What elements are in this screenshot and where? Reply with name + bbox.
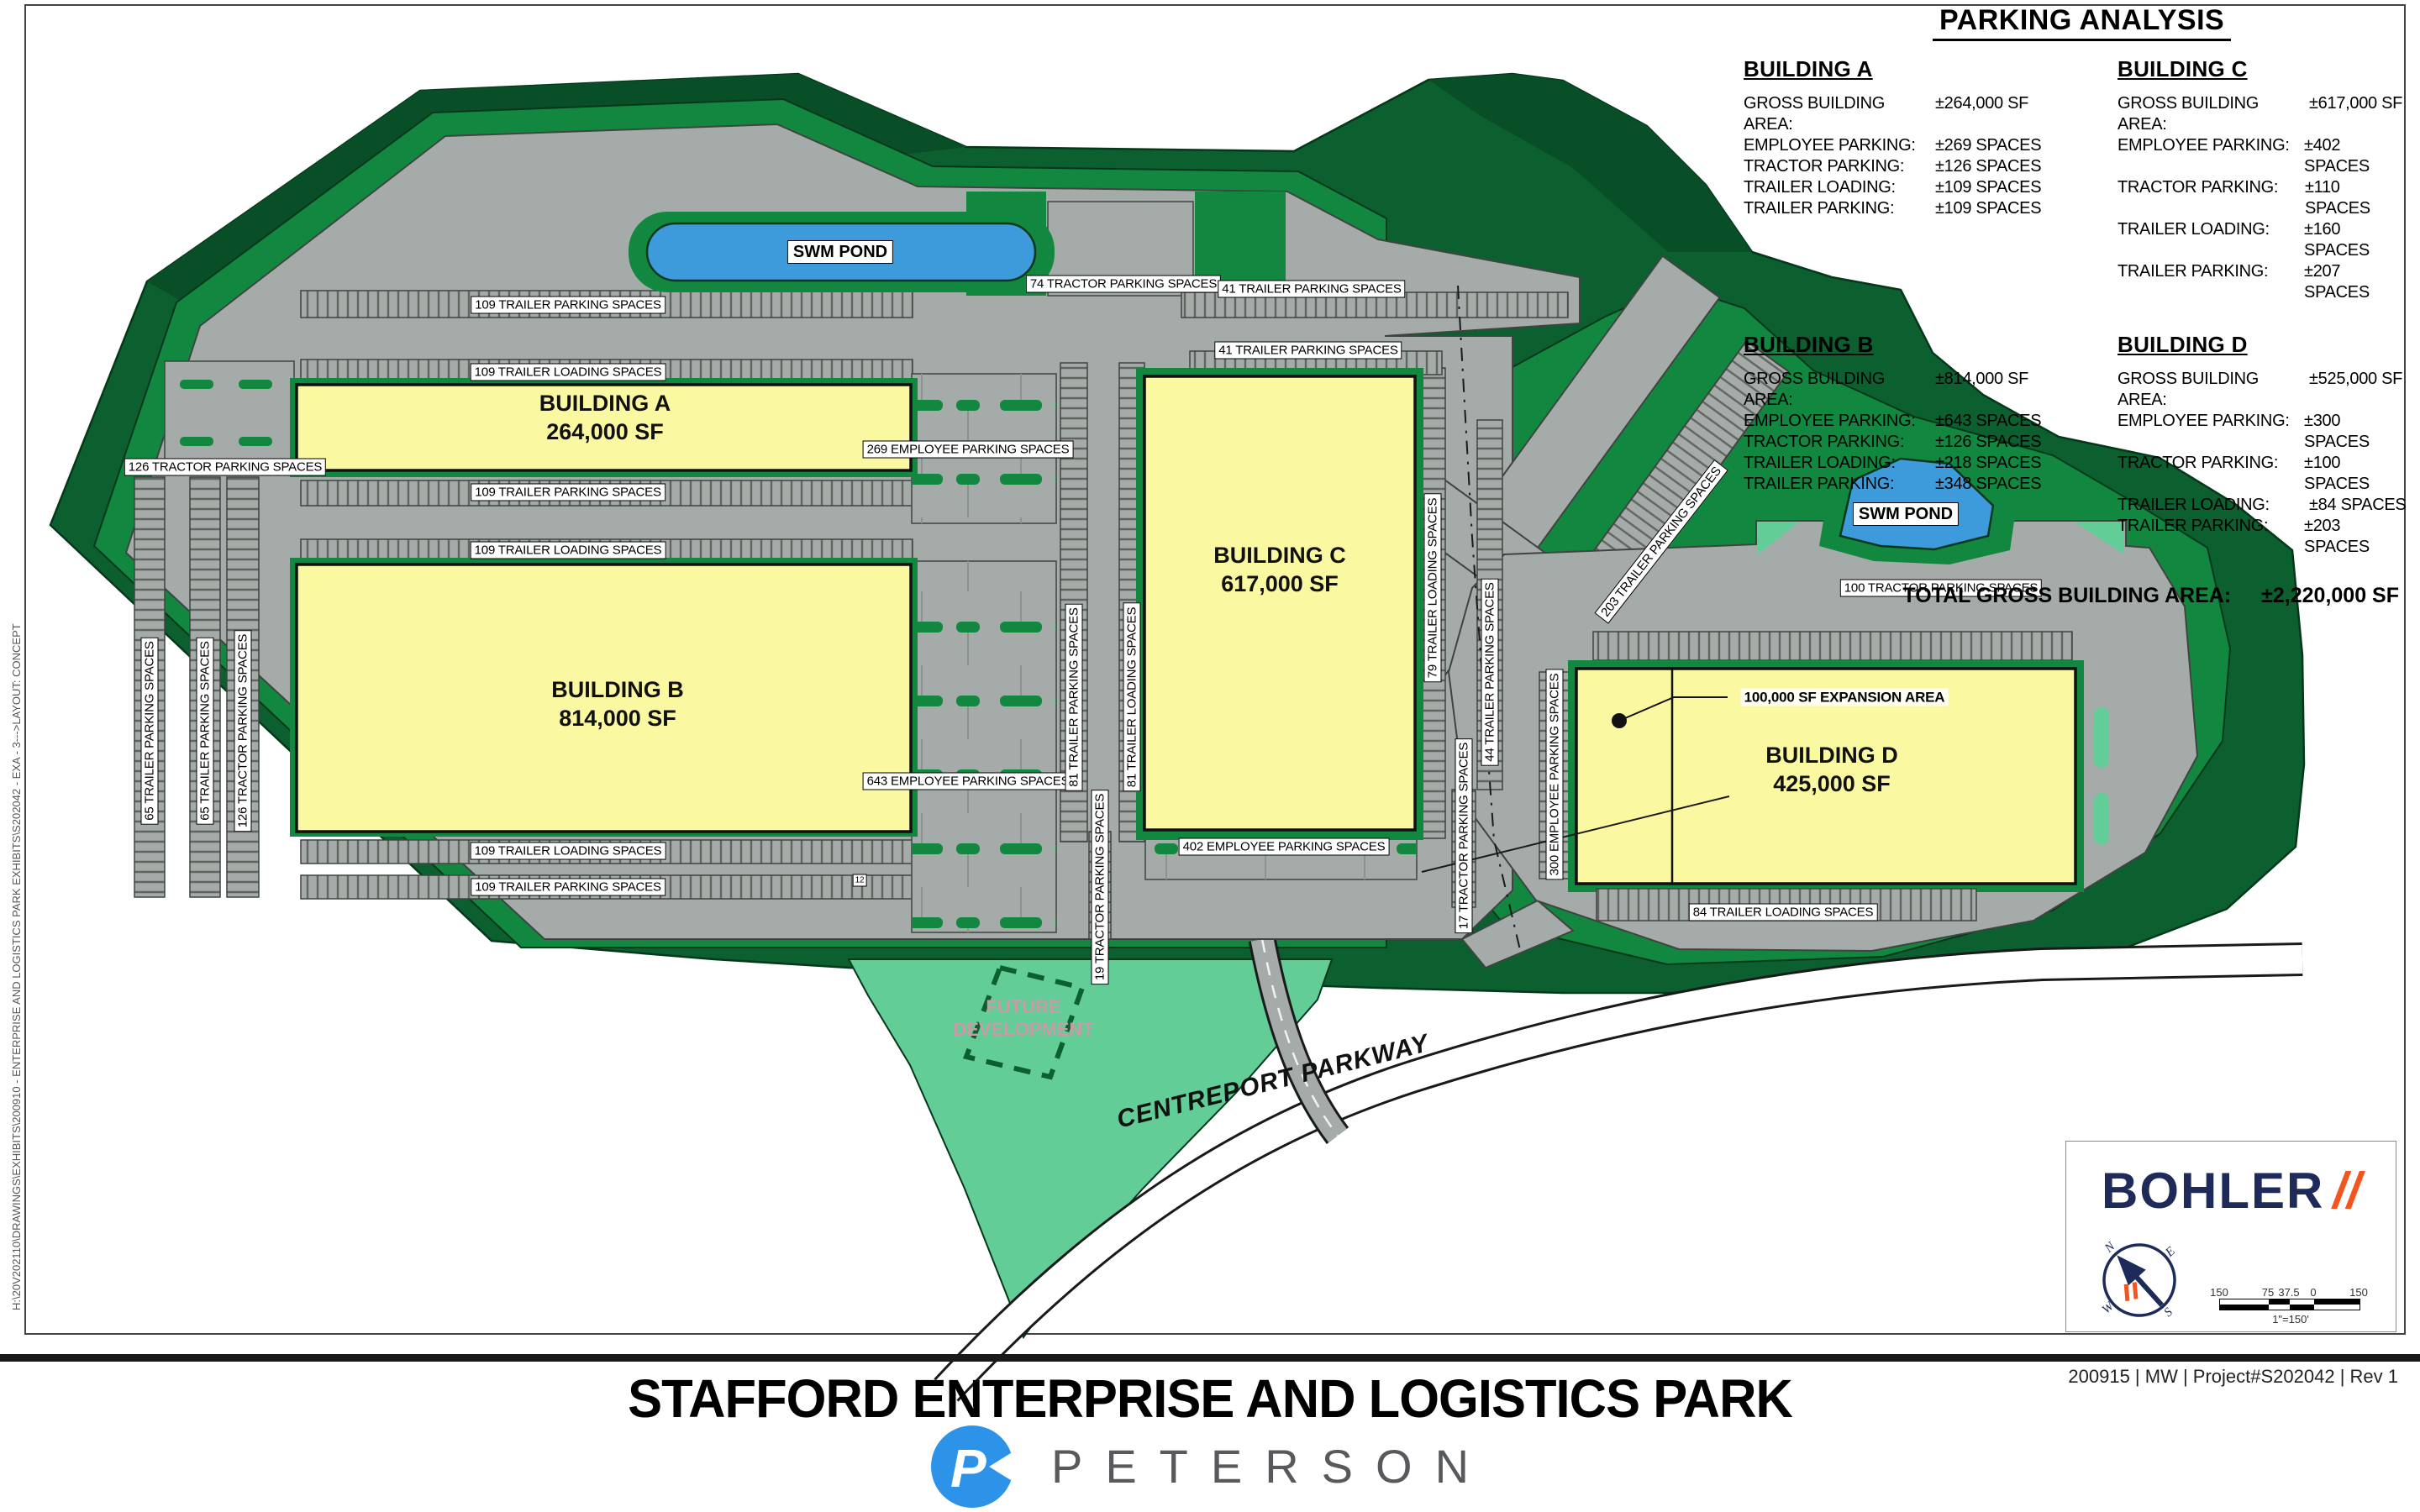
analysis-row: TRAILER PARKING:±109 SPACES xyxy=(1744,198,2117,219)
scale-tick: 0 xyxy=(2310,1286,2316,1299)
parking-label: 65 TRAILER PARKING SPACES xyxy=(141,637,159,824)
employee-lot-643-islands xyxy=(912,561,1056,932)
analysis-row: TRAILER PARKING:±207 SPACES xyxy=(2117,261,2407,303)
svg-text:P: P xyxy=(950,1438,986,1499)
engineer-block: BOHLER // NESW 1507537.50150 xyxy=(2065,1141,2396,1332)
parking-label: 19 TRACTOR PARKING SPACES xyxy=(1092,790,1109,984)
parking-label: 126 TRACTOR PARKING SPACES xyxy=(124,459,326,476)
analysis-row: GROSS BUILDING AREA:±617,000 SF xyxy=(2117,93,2407,135)
parking-label: 17 TRACTOR PARKING SPACES xyxy=(1455,738,1473,933)
parking-label: 41 TRAILER PARKING SPACES xyxy=(1214,342,1402,360)
scale-tick: 150 xyxy=(2210,1286,2228,1299)
analysis-building-block: BUILDING DGROSS BUILDING AREA:±525,000 S… xyxy=(2117,332,2407,558)
building-c xyxy=(1144,376,1415,830)
building-name-label: BUILDING D425,000 SF xyxy=(1765,741,1898,798)
scale-tick: 37.5 xyxy=(2278,1286,2299,1299)
parking-analysis-panel: PARKING ANALYSIS BUILDING AGROSS BUILDIN… xyxy=(1744,3,2409,608)
compass-letter: S xyxy=(2162,1305,2176,1320)
parking-label: 300 EMPLOYEE PARKING SPACES xyxy=(1546,669,1564,880)
trailer-row xyxy=(1593,632,2072,660)
bohler-slashes-icon: // xyxy=(2333,1165,2360,1217)
total-label: TOTAL GROSS BUILDING AREA: xyxy=(1902,583,2231,608)
parking-island xyxy=(180,380,213,389)
analysis-row: GROSS BUILDING AREA:±264,000 SF xyxy=(1744,93,2117,135)
parking-label: 41 TRAILER PARKING SPACES xyxy=(1218,281,1405,298)
scale-text: 1"=150' xyxy=(2219,1313,2362,1326)
analysis-row: TRACTOR PARKING:±126 SPACES xyxy=(1744,156,2117,177)
parking-label: 100,000 SF EXPANSION AREA xyxy=(1741,689,1949,706)
parking-label: 109 TRAILER PARKING SPACES xyxy=(471,879,665,896)
analysis-row: TRAILER PARKING:±203 SPACES xyxy=(2117,516,2407,558)
parking-label: 109 TRAILER LOADING SPACES xyxy=(471,364,666,381)
analysis-row: TRAILER LOADING:±109 SPACES xyxy=(1744,177,2117,198)
analysis-building-block: BUILDING AGROSS BUILDING AREA:±264,000 S… xyxy=(1744,56,2117,303)
analysis-row: EMPLOYEE PARKING:±643 SPACES xyxy=(1744,411,2117,432)
green-island xyxy=(2094,707,2109,768)
parking-analysis-grid: BUILDING AGROSS BUILDING AREA:±264,000 S… xyxy=(1744,56,2409,558)
parking-label: 79 TRAILER LOADING SPACES xyxy=(1424,494,1442,683)
developer-logo: P PETERSON xyxy=(0,1423,2420,1510)
parking-analysis-total: TOTAL GROSS BUILDING AREA: ±2,220,000 SF xyxy=(1744,583,2409,608)
analysis-row: EMPLOYEE PARKING:±269 SPACES xyxy=(1744,135,2117,156)
parking-label: 109 TRAILER LOADING SPACES xyxy=(471,542,666,559)
parking-label: 109 TRAILER PARKING SPACES xyxy=(471,484,665,501)
scale-bar-ticks: 1507537.50150 xyxy=(2219,1286,2362,1299)
analysis-building-block: BUILDING BGROSS BUILDING AREA:±814,000 S… xyxy=(1744,332,2117,558)
parking-island xyxy=(180,437,213,446)
expansion-leader-dot xyxy=(1612,713,1627,728)
scale-bar: 1507537.50150 1"=150' xyxy=(2219,1286,2362,1326)
analysis-row: TRACTOR PARKING:±110 SPACES xyxy=(2117,177,2407,219)
swm-pond-label: SWM POND xyxy=(787,240,893,264)
compass-letter: W xyxy=(2100,1299,2117,1316)
analysis-row: GROSS BUILDING AREA:±814,000 SF xyxy=(1744,369,2117,411)
parking-label: 74 TRACTOR PARKING SPACES xyxy=(1026,276,1221,293)
analysis-row: EMPLOYEE PARKING:±300 SPACES xyxy=(2117,411,2407,453)
parking-label: 84 TRAILER LOADING SPACES xyxy=(1689,904,1878,921)
analysis-row: TRAILER LOADING:±218 SPACES xyxy=(1744,453,2117,474)
parking-island xyxy=(239,437,272,446)
building-name-label: BUILDING B814,000 SF xyxy=(551,675,684,732)
analysis-row: EMPLOYEE PARKING:±402 SPACES xyxy=(2117,135,2407,177)
future-development-label: FUTURE DEVELOPMENT xyxy=(953,995,1093,1041)
title-divider-rule xyxy=(0,1354,2420,1362)
analysis-row: TRAILER PARKING:±348 SPACES xyxy=(1744,474,2117,495)
analysis-row: TRACTOR PARKING:±126 SPACES xyxy=(1744,432,2117,453)
parking-label: 109 TRAILER PARKING SPACES xyxy=(471,297,665,314)
analysis-row: GROSS BUILDING AREA:±525,000 SF xyxy=(2117,369,2407,411)
bohler-wordmark: BOHLER xyxy=(2102,1165,2324,1217)
parking-label: 269 EMPLOYEE PARKING SPACES xyxy=(863,441,1074,459)
parking-label: 44 TRAILER PARKING SPACES xyxy=(1481,578,1499,765)
parking-label: 402 EMPLOYEE PARKING SPACES xyxy=(1179,838,1390,856)
building-name-label: BUILDING C617,000 SF xyxy=(1213,541,1346,598)
scale-tick: 75 xyxy=(2262,1286,2274,1299)
file-path-note: H:\20V202110\DRAWINGS\EXHIBITS\200910 - … xyxy=(10,623,23,1310)
building-name-label: BUILDING A264,000 SF xyxy=(539,389,671,446)
parking-island xyxy=(239,380,272,389)
parking-label: 109 TRAILER LOADING SPACES xyxy=(471,843,666,860)
parking-label: 65 TRAILER PARKING SPACES xyxy=(197,637,214,824)
analysis-row: TRAILER LOADING:±84 SPACES xyxy=(2117,495,2407,516)
peterson-monogram-icon: P xyxy=(929,1423,1016,1510)
scale-bar-graphic xyxy=(2219,1299,2360,1310)
peterson-wordmark: PETERSON xyxy=(1051,1441,1491,1492)
north-arrow-icon: NESW xyxy=(2093,1234,2186,1326)
analysis-row: TRACTOR PARKING:±100 SPACES xyxy=(2117,453,2407,495)
total-value: ±2,220,000 SF xyxy=(2261,583,2399,608)
parking-label: 81 TRAILER PARKING SPACES xyxy=(1065,603,1083,790)
site-plan-sheet: 109 TRAILER PARKING SPACES109 TRAILER LO… xyxy=(0,0,2420,1512)
bohler-logo: BOHLER // xyxy=(2102,1165,2361,1217)
scale-tick: 150 xyxy=(2349,1286,2368,1299)
sheet-title: STAFFORD ENTERPRISE AND LOGISTICS PARK xyxy=(49,1369,2372,1428)
analysis-building-block: BUILDING CGROSS BUILDING AREA:±617,000 S… xyxy=(2117,56,2407,303)
parking-label: 126 TRACTOR PARKING SPACES xyxy=(234,630,252,832)
green-island xyxy=(2094,793,2109,845)
parking-label: 81 TRAILER LOADING SPACES xyxy=(1123,603,1141,792)
parking-analysis-title: PARKING ANALYSIS xyxy=(1933,3,2231,41)
parking-label: 643 EMPLOYEE PARKING SPACES xyxy=(863,773,1074,790)
analysis-row: TRAILER LOADING:±160 SPACES xyxy=(2117,219,2407,261)
parking-label: 12 xyxy=(853,874,867,887)
